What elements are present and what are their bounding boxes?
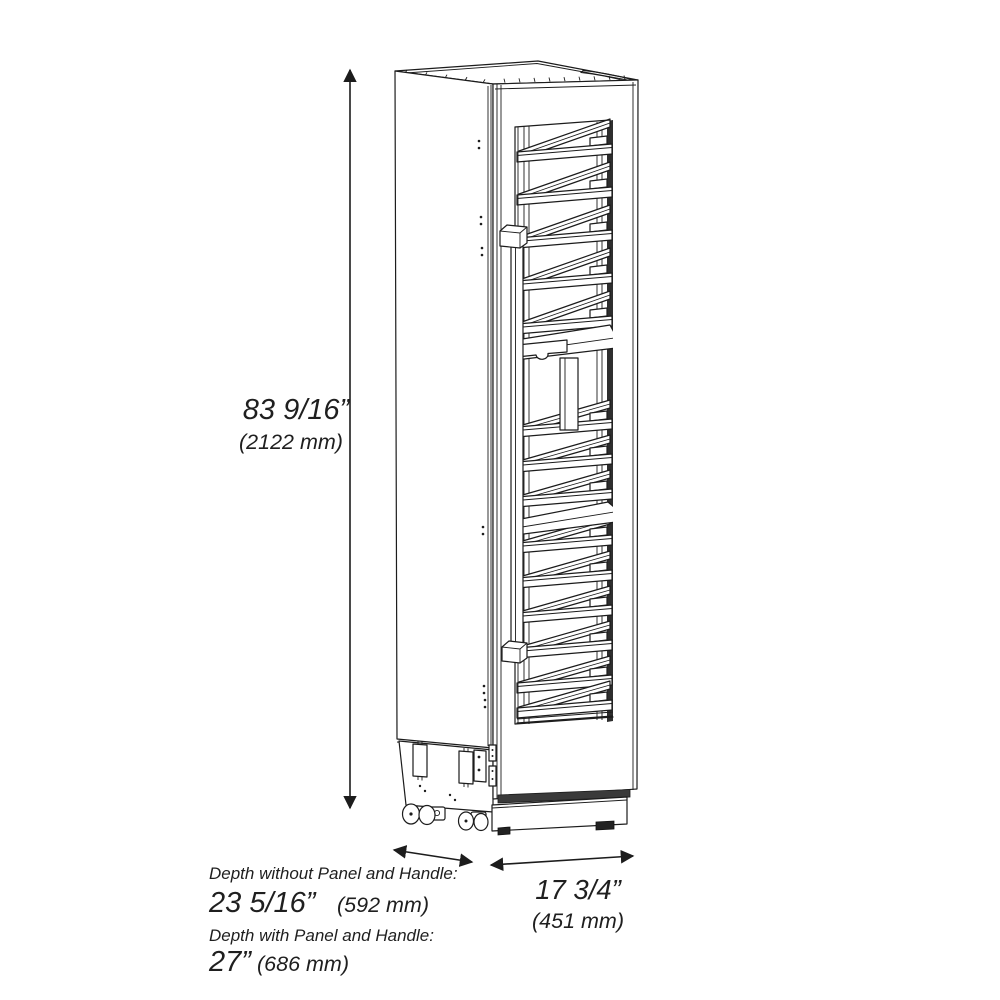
width-imperial-label: 17 3/4” (535, 874, 622, 905)
wine-cooler-line-drawing: 83 9/16” (2122 mm) Depth without Panel a… (0, 0, 1000, 1000)
height-imperial-label: 83 9/16” (243, 394, 351, 426)
depth-arrow (394, 850, 472, 862)
caster-wheel-right (459, 812, 489, 831)
depth-without-caption: Depth without Panel and Handle: (209, 864, 458, 883)
handle-bracket-top (500, 225, 527, 248)
glass-window (516, 118, 620, 727)
width-arrow (491, 856, 633, 865)
depth-with-metric: (686 mm) (257, 952, 349, 976)
caster-wheel-left (403, 804, 446, 825)
depth-with-imperial: 27” (208, 946, 252, 978)
leveling-foot-left (498, 827, 510, 835)
depth-without-imperial: 23 5/16” (208, 887, 317, 919)
leveling-foot-right (596, 821, 614, 830)
height-metric-label: (2122 mm) (239, 430, 343, 454)
cabinet-base (399, 741, 493, 831)
cabinet (395, 61, 638, 835)
depth-with-caption: Depth with Panel and Handle: (209, 926, 434, 945)
cabinet-side-panel (395, 71, 493, 751)
depth-without-metric: (592 mm) (337, 893, 429, 917)
dimension-diagram: 83 9/16” (2122 mm) Depth without Panel a… (0, 0, 1000, 1000)
handle-bracket-bottom (502, 641, 527, 663)
width-metric-label: (451 mm) (532, 909, 624, 933)
